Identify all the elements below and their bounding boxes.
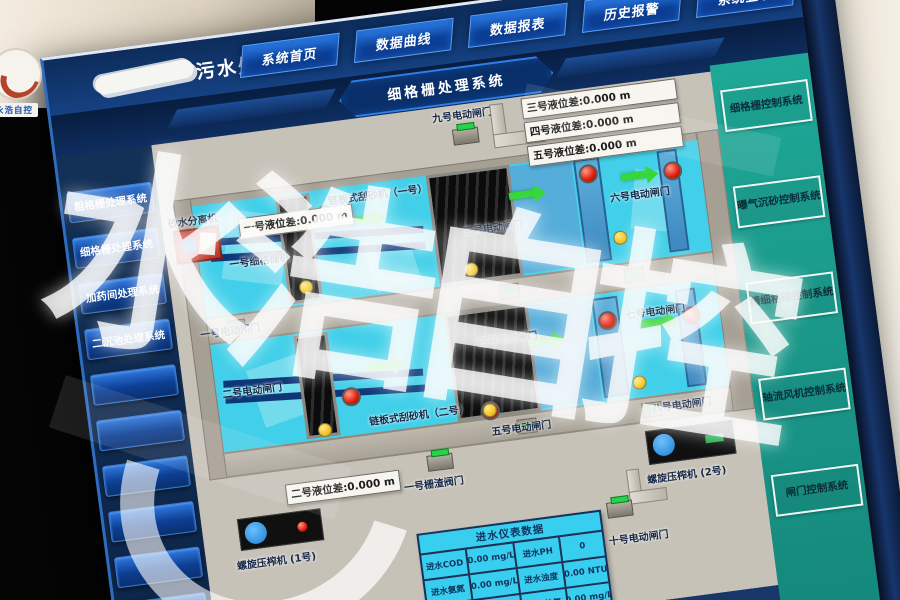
vendor-logo-badge: 永浩自控 [0,48,44,117]
process-diagram: 九号电动闸门 三号液位差:0.000 m 四号液位差:0.000 m 五号液位差… [151,72,778,600]
table-cell: 0.00 mg/L [470,569,521,599]
table-cell: 进水PH [514,537,563,567]
sidebar-item-blank[interactable] [96,410,185,452]
sidebar-item-coarse-screen[interactable]: 粗格栅处理系统 [66,182,155,224]
sidebar-item-fine-screen[interactable]: 细格栅处理系统 [72,227,161,269]
sidebar-item-blank[interactable] [120,592,209,600]
vendor-logo-text: 永浩自控 [0,103,38,117]
table-cell: 0.00 mg/L [467,543,518,573]
gate-hoist-icon[interactable] [499,282,521,299]
slag-valve-label: 一号栅渣阀门 [403,471,464,494]
nav-data-curve-button[interactable]: 数据曲线 [354,18,454,63]
gate9-valve-icon[interactable] [452,126,480,145]
slag-valve-icon[interactable] [426,453,454,472]
vendor-logo-icon [0,48,42,100]
screw-press1-icon[interactable] [237,508,324,551]
nav-history-alarm-button[interactable]: 历史报警 [582,0,682,33]
control-aerated-grit-button[interactable]: 曝气沉砂控制系统 [733,175,826,228]
table-cell: 0 [560,532,605,561]
table-cell: 进水COD [421,549,470,579]
nav-home-button[interactable]: 系统首页 [240,33,340,78]
table-cell: 0.00 NTU [563,558,608,587]
sidebar-item-blank[interactable] [114,546,203,588]
redaction-scribble [93,58,195,97]
control-superfine-screen-button[interactable]: 精细格栅控制系统 [745,271,838,324]
press2-run-bar [705,433,724,443]
table-cell: 进水浊度 [518,563,567,593]
scada-screen: 污水处理厂 系统首页 数据曲线 数据报表 历史报警 系统登录 细格栅处理系统 粗… [40,0,881,600]
sidebar-item-blank[interactable] [90,364,179,406]
gate10-valve-icon[interactable] [606,500,634,519]
control-axial-fan-button[interactable]: 轴流风机控制系统 [758,368,851,421]
screw-press2-label: 螺旋压榨机 (2号) [646,461,727,486]
sidebar-item-blank[interactable] [108,501,197,543]
control-gate-button[interactable]: 闸门控制系统 [771,464,864,517]
sidebar-item-secondary-tank[interactable]: 二沉池处理系统 [84,318,173,360]
nav-login-button[interactable]: 系统登录 [696,0,796,18]
sidebar-item-dosing-room[interactable]: 加药间处理系统 [78,273,167,315]
screw-press2-icon[interactable] [645,420,737,465]
level-readout-2: 二号液位差:0.000 m [285,470,401,506]
sand-separator-icon[interactable] [173,225,223,265]
gate10-label: 十号电动闸门 [608,525,669,548]
inlet-data-table: 进水仪表数据 进水COD 0.00 mg/L 进水PH 0 进水氨氮 0.00 … [416,510,613,600]
monitor: 污水处理厂 系统首页 数据曲线 数据报表 历史报警 系统登录 细格栅处理系统 粗… [40,0,900,600]
control-fine-screen-button[interactable]: 细格栅控制系统 [720,79,813,132]
press1-alarm-dot [297,521,308,532]
nav-data-report-button[interactable]: 数据报表 [468,3,568,48]
gate-hoist-icon[interactable] [623,266,645,283]
sidebar-item-blank[interactable] [102,455,191,497]
screw-press1-label: 螺旋压榨机 (1号) [236,547,317,572]
photo-stage: 污水处理厂 系统首页 数据曲线 数据报表 历史报警 系统登录 细格栅处理系统 粗… [0,0,900,600]
